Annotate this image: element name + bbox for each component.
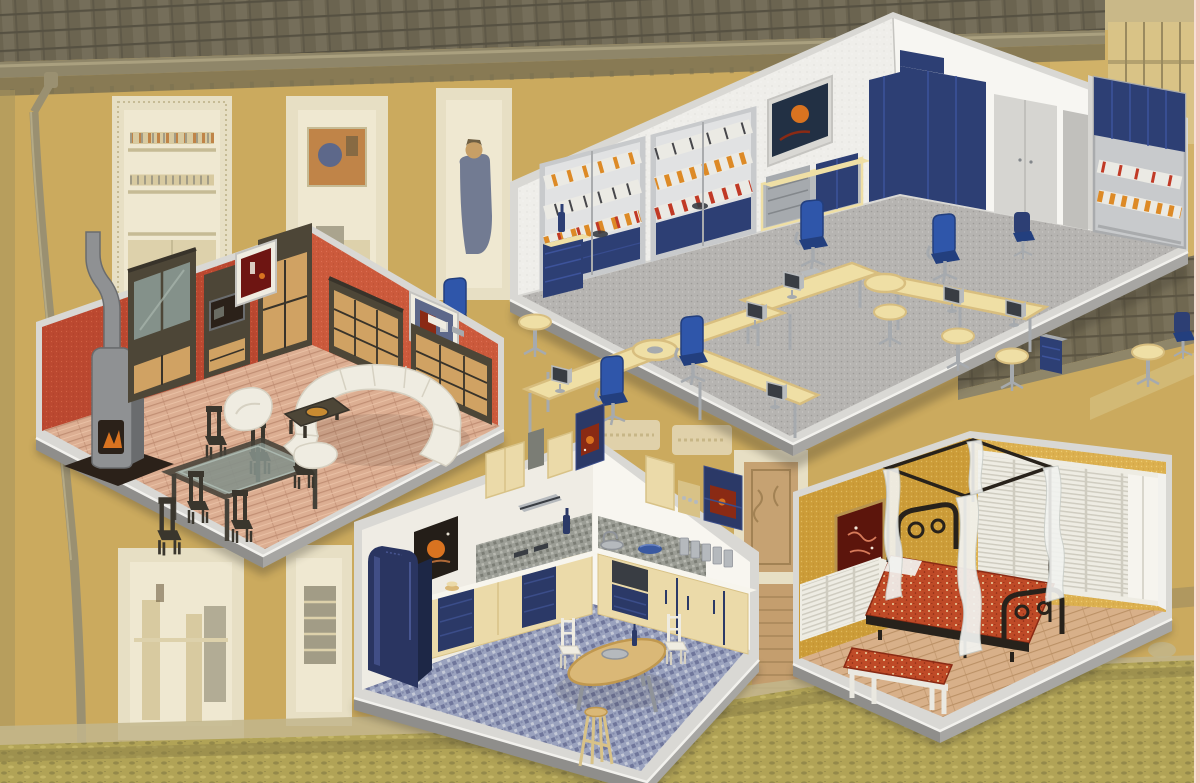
ottoman (294, 443, 337, 469)
collage-stage (0, 0, 1200, 783)
display-cabinet (128, 249, 196, 403)
wardrobe-gray (994, 94, 1088, 230)
window-lower-middle (286, 545, 352, 726)
pink-edge-highlight (1194, 0, 1196, 783)
window-with-figure (436, 88, 512, 300)
refrigerator (368, 546, 432, 688)
binder-shelf-unit (652, 108, 755, 260)
collage-art (0, 0, 1200, 783)
armchair (224, 388, 272, 431)
person-figure (460, 154, 492, 254)
window-lower-left (118, 548, 244, 740)
binder-shelf-right (1088, 75, 1185, 248)
